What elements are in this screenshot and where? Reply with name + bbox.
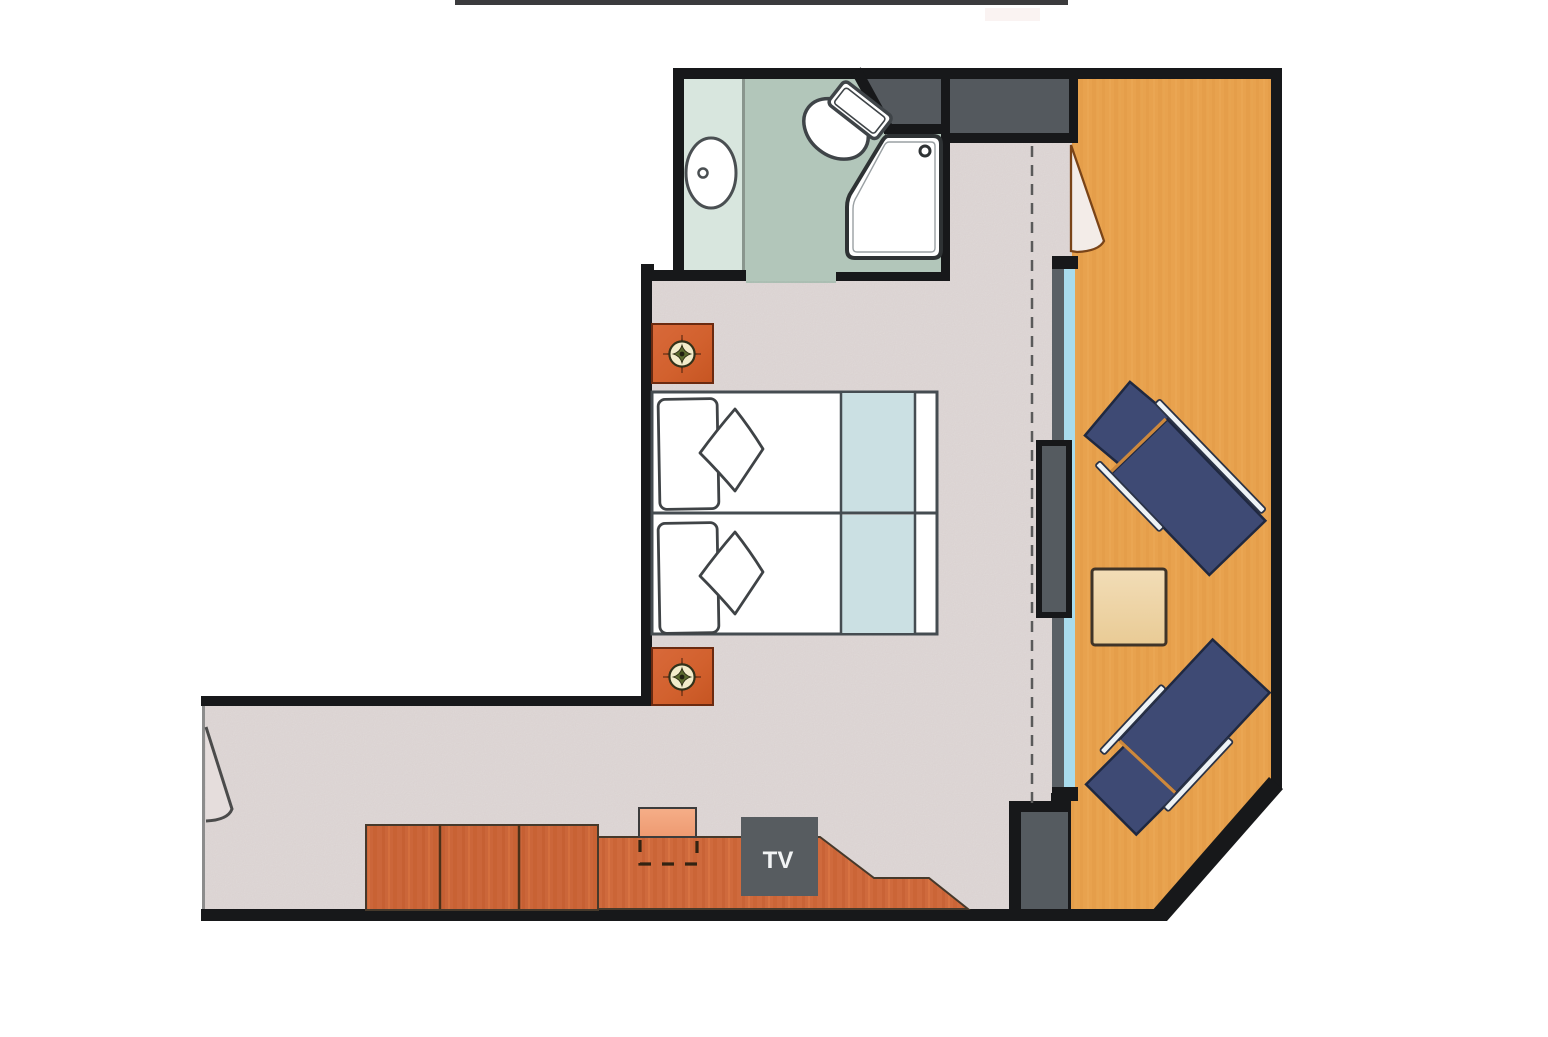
svg-text:TV: TV [763,847,794,874]
